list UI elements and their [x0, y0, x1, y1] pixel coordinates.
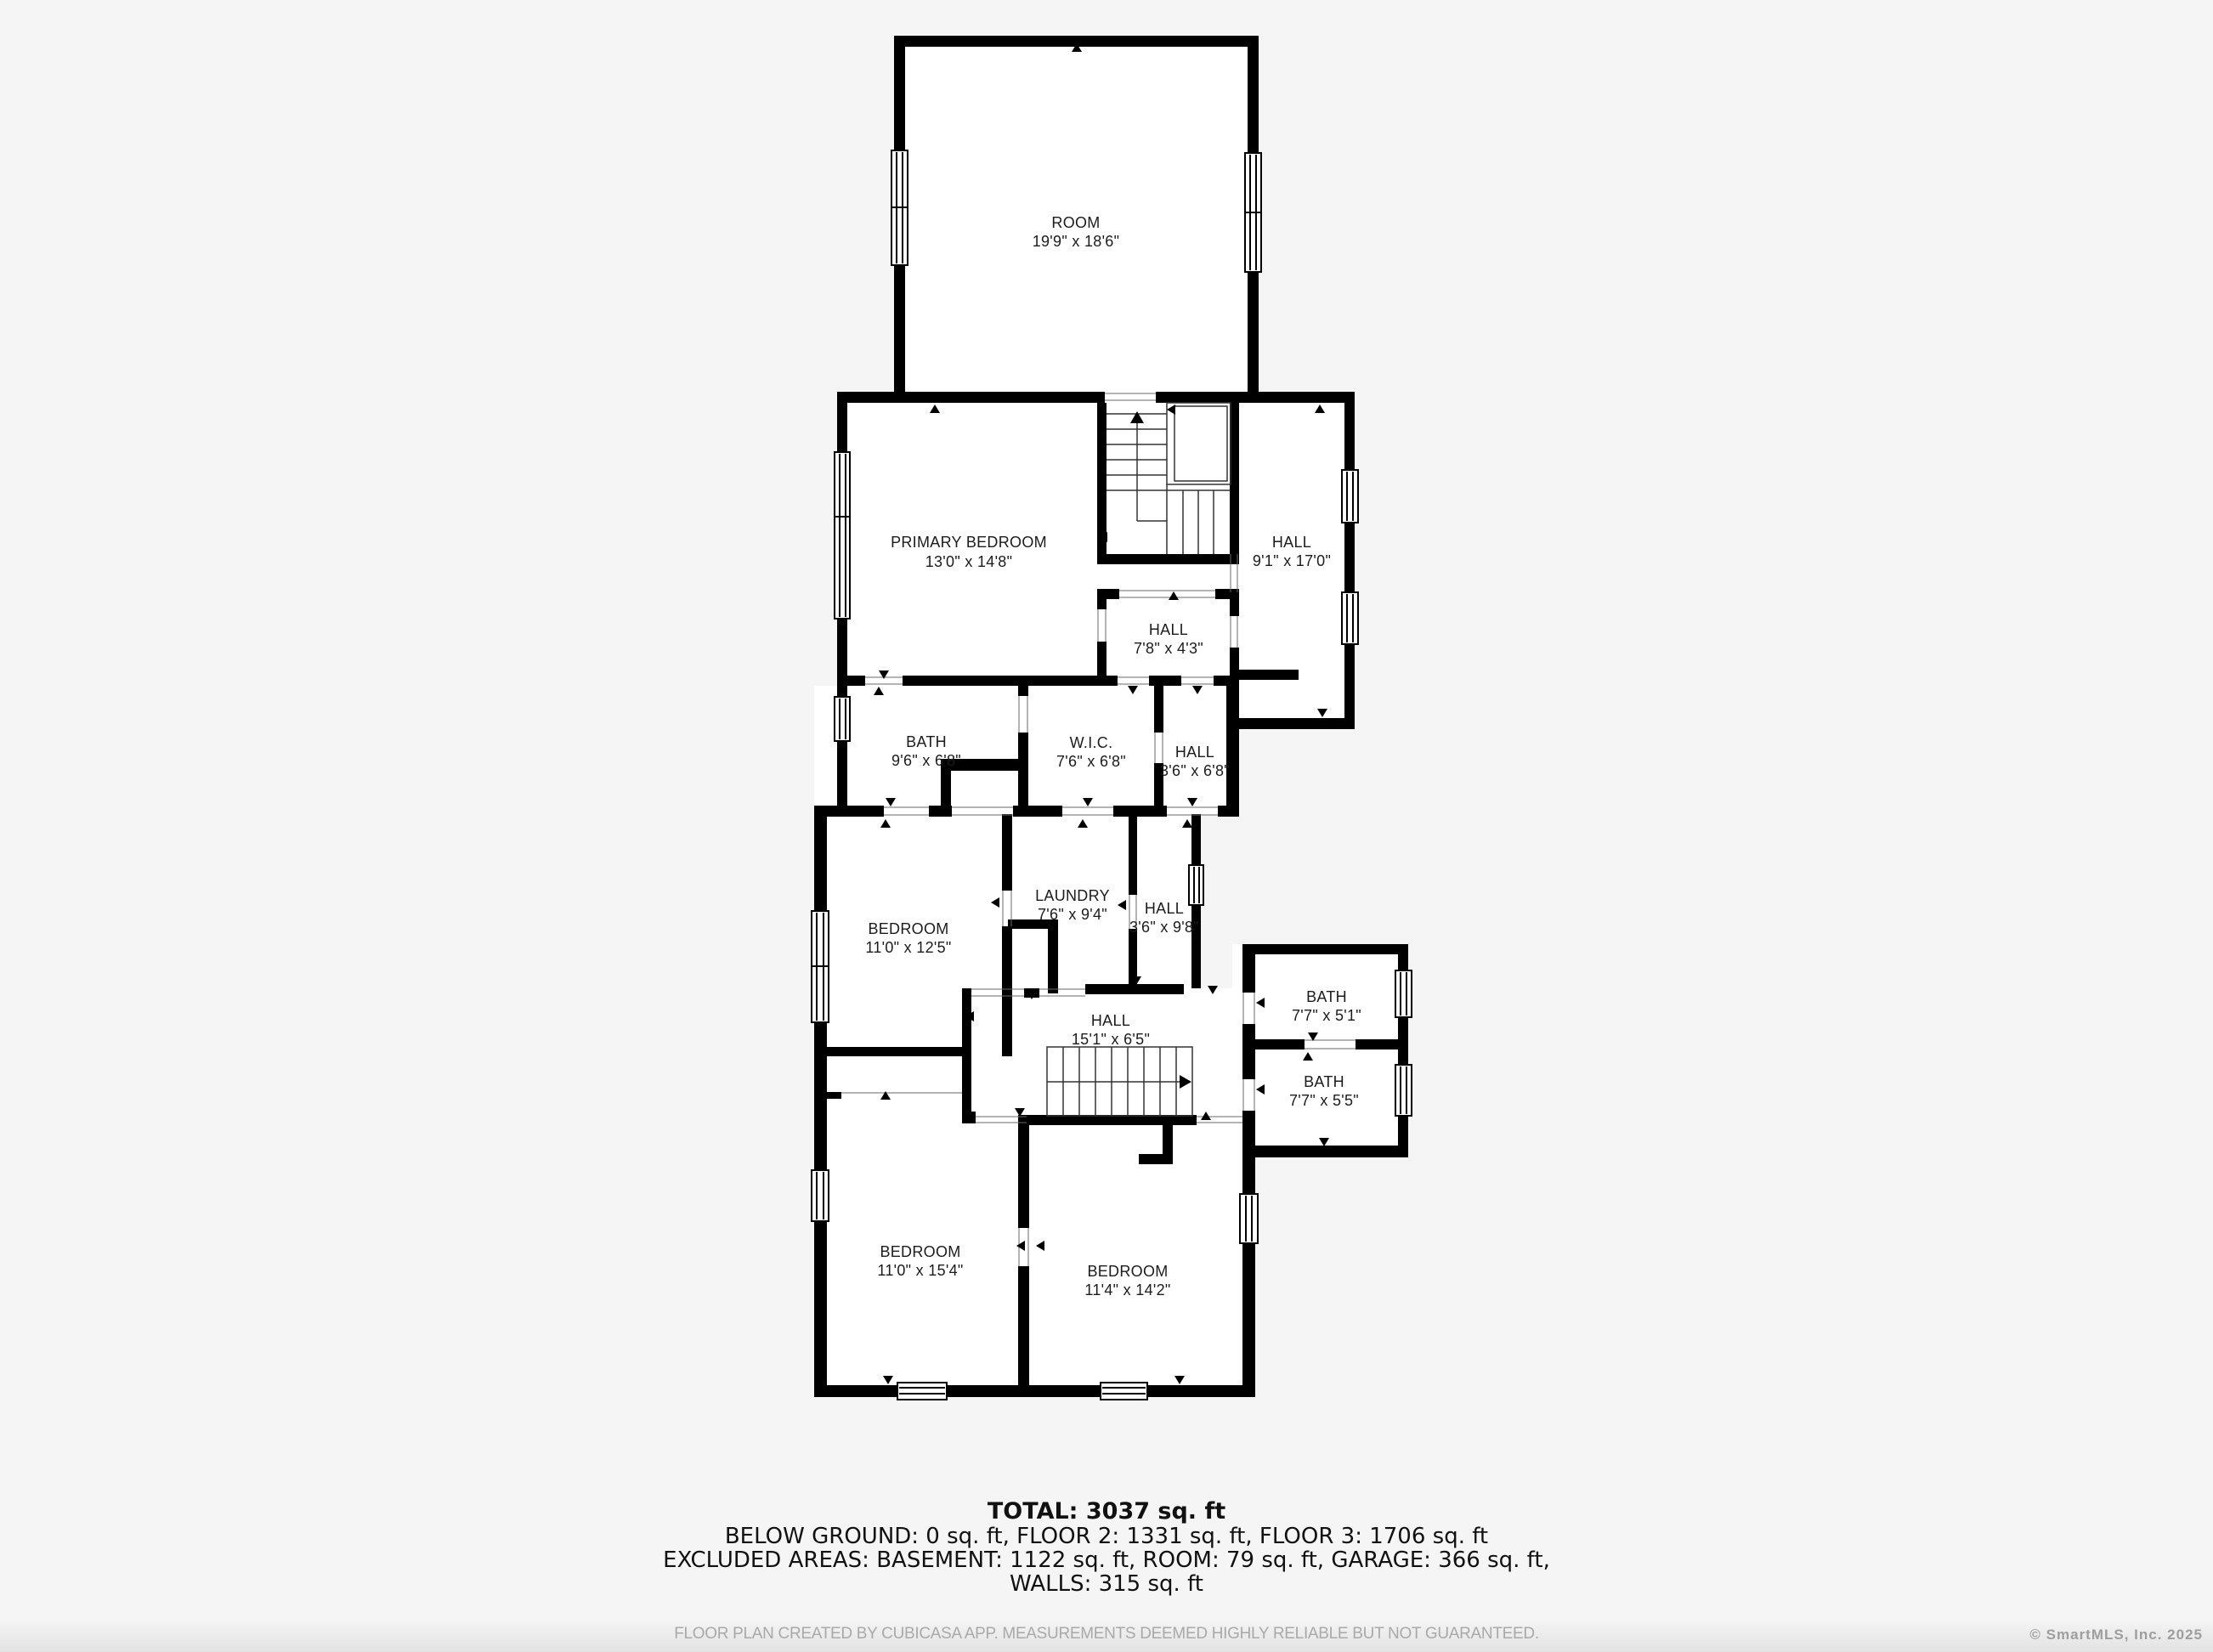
svg-text:HALL: HALL — [1145, 900, 1184, 917]
svg-text:11'4" x 14'2": 11'4" x 14'2" — [1084, 1281, 1170, 1298]
window-bath-left — [835, 697, 850, 741]
svg-text:7'8" x 4'3": 7'8" x 4'3" — [1134, 640, 1203, 657]
svg-text:HALL: HALL — [1175, 744, 1214, 761]
svg-text:HALL: HALL — [1272, 534, 1311, 551]
svg-text:11'0" x 12'5": 11'0" x 12'5" — [865, 939, 951, 956]
copyright-text: © SmartMLS, Inc. 2025 — [2029, 1627, 2203, 1644]
total-area: TOTAL: 3037 sq. ft — [0, 1499, 2213, 1525]
svg-text:HALL: HALL — [1091, 1012, 1130, 1029]
window-bedroom-154 — [812, 1170, 829, 1221]
svg-text:BATH: BATH — [906, 733, 947, 750]
svg-text:7'6" x 9'4": 7'6" x 9'4" — [1038, 906, 1107, 923]
svg-text:11'0" x 15'4": 11'0" x 15'4" — [877, 1262, 963, 1279]
walls-area: WALLS: 315 sq. ft — [0, 1572, 2213, 1596]
svg-text:13'0" x 14'8": 13'0" x 14'8" — [925, 553, 1013, 570]
window-hall-upper-1 — [1342, 470, 1358, 523]
window-bedroom-125 — [812, 911, 829, 1022]
svg-text:HALL: HALL — [1149, 621, 1188, 638]
svg-text:BATH: BATH — [1306, 988, 1347, 1005]
floors-area: BELOW GROUND: 0 sq. ft, FLOOR 2: 1331 sq… — [0, 1525, 2213, 1548]
svg-text:BATH: BATH — [1304, 1073, 1344, 1090]
svg-text:BEDROOM: BEDROOM — [1087, 1263, 1168, 1280]
svg-text:15'1" x 6'5": 15'1" x 6'5" — [1072, 1031, 1150, 1048]
window-bath-55 — [1395, 1065, 1412, 1116]
svg-text:9'1" x 17'0": 9'1" x 17'0" — [1253, 552, 1331, 569]
svg-text:3'6" x 6'8": 3'6" x 6'8" — [1160, 762, 1230, 779]
floor-plan: ROOM19'9" x 18'6" PRIMARY BEDROOM13'0" x… — [0, 0, 2213, 1652]
window-bath-51 — [1395, 970, 1412, 1017]
svg-text:7'6" x 6'8": 7'6" x 6'8" — [1056, 753, 1126, 770]
window-hall-upper-2 — [1342, 592, 1358, 644]
window-bedroom-154-bottom — [897, 1383, 947, 1400]
svg-text:9'6" x 6'8": 9'6" x 6'8" — [891, 752, 961, 769]
svg-text:3'6" x 9'8": 3'6" x 9'8" — [1129, 919, 1199, 936]
window-top-room-right — [1245, 153, 1261, 272]
svg-text:7'7" x 5'5": 7'7" x 5'5" — [1289, 1092, 1359, 1109]
excluded-areas: EXCLUDED AREAS: BASEMENT: 1122 sq. ft, R… — [0, 1548, 2213, 1572]
window-top-room-left — [891, 150, 908, 265]
svg-text:BEDROOM: BEDROOM — [880, 1243, 960, 1260]
disclaimer-text: FLOOR PLAN CREATED BY CUBICASA APP. MEAS… — [0, 1625, 2213, 1644]
svg-text:PRIMARY BEDROOM: PRIMARY BEDROOM — [891, 534, 1047, 551]
window-bedroom-142-bottom — [1101, 1383, 1147, 1400]
area-summary: TOTAL: 3037 sq. ft BELOW GROUND: 0 sq. f… — [0, 1499, 2213, 1596]
svg-text:7'7" x 5'1": 7'7" x 5'1" — [1292, 1007, 1361, 1024]
svg-text:19'9" x 18'6": 19'9" x 18'6" — [1033, 233, 1120, 250]
window-hall-98 — [1189, 865, 1203, 905]
window-bedroom-142-right — [1240, 1194, 1258, 1243]
svg-text:LAUNDRY: LAUNDRY — [1035, 887, 1110, 904]
footer-bar: FLOOR PLAN CREATED BY CUBICASA APP. MEAS… — [0, 1617, 2213, 1652]
window-primary-bedroom — [835, 452, 850, 619]
floor-plan-page: ROOM19'9" x 18'6" PRIMARY BEDROOM13'0" x… — [0, 0, 2213, 1652]
svg-text:ROOM: ROOM — [1051, 214, 1100, 231]
svg-text:W.I.C.: W.I.C. — [1070, 734, 1113, 751]
svg-text:BEDROOM: BEDROOM — [868, 920, 948, 937]
